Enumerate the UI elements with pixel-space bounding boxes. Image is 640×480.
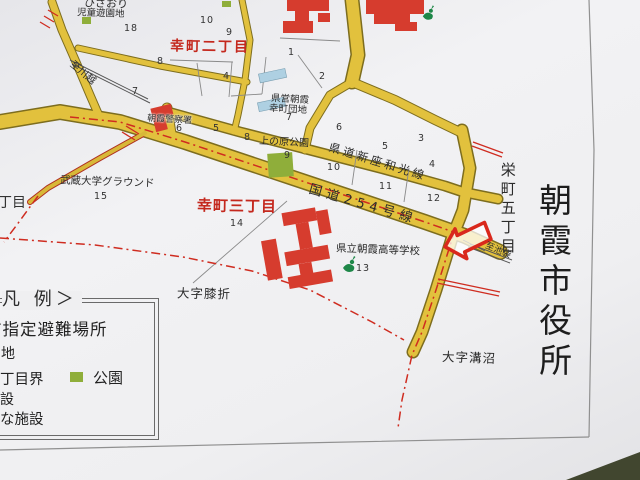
- legend-park-swatch: [70, 372, 83, 382]
- block-number: 14: [230, 218, 244, 229]
- block-number: 12: [427, 193, 441, 204]
- building-top-a: [283, 0, 330, 33]
- block-number: 9: [226, 27, 233, 38]
- block-number: 10: [327, 162, 341, 173]
- block-number: 4: [223, 71, 230, 82]
- highschool-buildings: [257, 205, 340, 292]
- legend-row-partial-facility: な施設: [0, 408, 44, 429]
- block-number: 6: [176, 123, 183, 134]
- block-number: 7: [132, 86, 139, 97]
- legend-row-partial-chi: 地: [1, 343, 15, 363]
- district-label-chome-partial: 丁目: [0, 196, 26, 211]
- building-top-b: [366, 0, 424, 31]
- legend-title: 凡 例＞: [2, 291, 82, 310]
- block-number: 5: [382, 141, 389, 152]
- block-number: 11: [379, 181, 393, 192]
- hizaori-park-label-line2: 児童遊園地: [77, 8, 125, 20]
- block-number: 5: [213, 123, 220, 134]
- map-title: 朝霞市役所: [535, 183, 570, 383]
- block-number: 4: [429, 159, 436, 170]
- block-number: 2: [319, 71, 326, 82]
- legend-row-chome-boundary: 丁目界: [0, 368, 44, 389]
- block-number: 15: [94, 191, 108, 202]
- oaza-hizaori-label: 大字膝折: [177, 287, 231, 301]
- oaza-mizonuma-label: 大字溝沼: [442, 350, 496, 365]
- legend-row-park: 公園: [93, 367, 123, 388]
- block-number: 3: [418, 133, 425, 144]
- block-number: 9: [284, 150, 291, 161]
- photo-background-corner: [566, 452, 640, 480]
- block-number: 10: [200, 15, 214, 26]
- block-number: 8: [157, 56, 164, 67]
- block-number: 8: [244, 132, 251, 143]
- block-number: 1: [288, 47, 295, 58]
- district-label-sakaecho5: 栄町五丁目: [499, 162, 515, 257]
- district-label-sachicho3: 幸町三丁目: [197, 198, 277, 215]
- legend-row-partial-setsu: 設: [0, 389, 14, 409]
- block-number: 7: [286, 112, 293, 123]
- legend-row-evacuation-site: 市指定避難場所: [0, 316, 108, 340]
- district-label-sachicho2: 幸町二丁目: [170, 39, 250, 55]
- block-number: 6: [336, 122, 343, 133]
- map-sign-photo: ひざおり 児童遊園地 幸町二丁目 幸町三丁目 丁目 県営朝霞 幸町団地 朝霞警察…: [0, 0, 640, 480]
- block-number: 13: [356, 263, 370, 274]
- block-number: 18: [124, 23, 138, 34]
